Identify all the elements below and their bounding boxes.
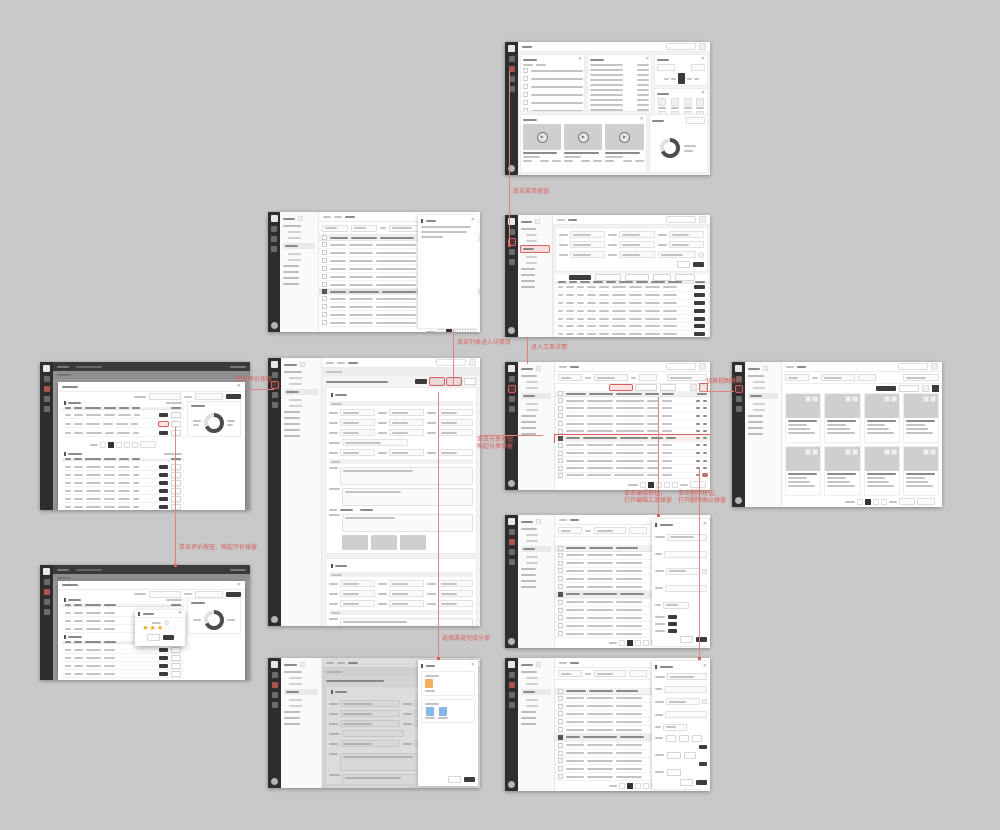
edit-link[interactable] [696,407,700,409]
drawer-field[interactable] [655,722,707,732]
row-action-button[interactable] [171,488,181,494]
action-button[interactable] [635,384,657,391]
form-field[interactable] [378,449,424,456]
row-checkbox[interactable] [322,312,327,317]
form-field[interactable] [427,600,473,607]
share-button-highlight[interactable] [447,378,461,385]
primary-action-button[interactable] [569,275,591,280]
nav-icon[interactable] [509,56,515,62]
form-field[interactable] [329,580,375,587]
nav-icon[interactable] [509,249,515,255]
filter-field[interactable] [608,241,654,248]
nav-icon[interactable] [736,406,742,412]
rate-button[interactable] [159,489,168,493]
delete-link[interactable] [703,467,707,469]
table-row[interactable] [62,662,184,670]
delete-link[interactable] [703,430,707,432]
row-checkbox[interactable] [558,774,563,779]
menu-item[interactable] [526,705,538,707]
nav-icon[interactable] [736,396,742,402]
menu-item[interactable] [284,429,300,431]
drawer-field[interactable] [655,697,707,707]
user-avatar[interactable] [508,638,515,645]
menu-item[interactable] [284,671,302,673]
menu-item[interactable] [289,383,302,385]
nav-icon[interactable] [509,376,515,382]
list-item[interactable] [590,109,649,111]
row-action-button[interactable] [694,324,705,328]
table-row[interactable] [555,457,710,465]
menu-item[interactable] [289,699,302,701]
filter-field[interactable] [559,241,605,248]
action-button[interactable] [595,274,621,281]
row-checkbox[interactable] [558,719,563,724]
nav-icon[interactable] [44,376,50,382]
menu-item[interactable] [526,683,538,685]
row-checkbox[interactable] [322,296,327,301]
row-checkbox[interactable] [558,458,563,463]
nav-icon[interactable] [272,372,278,378]
form-field[interactable] [378,580,424,587]
row-action-button[interactable] [171,464,181,470]
form-field[interactable] [329,429,375,436]
row-checkbox[interactable] [558,443,563,448]
star-empty-icon[interactable]: ☆ [164,625,170,633]
modal-filter-select[interactable] [149,393,181,400]
star-filled-icon[interactable]: ★ [150,625,156,633]
menu-item[interactable] [521,528,537,530]
nav-icon[interactable] [44,609,50,615]
table-row[interactable] [555,331,708,337]
row-checkbox[interactable] [558,751,563,756]
menu-item[interactable] [753,403,765,405]
tag-button[interactable] [699,762,707,766]
filter-select[interactable] [785,374,809,381]
pagination[interactable] [785,496,939,507]
close-icon[interactable]: ✕ [471,218,475,223]
form-field[interactable] [329,449,375,456]
rate-button[interactable] [159,465,168,469]
list-item[interactable] [590,79,649,81]
video-item[interactable]: ▶ [523,124,561,170]
share-link-icon[interactable] [439,707,447,716]
filter-select[interactable] [639,374,657,381]
nav-icon[interactable] [272,702,278,708]
reset-button[interactable] [677,261,690,268]
form-field[interactable] [427,429,473,436]
table-row[interactable] [62,430,184,437]
user-avatar[interactable] [271,778,278,785]
rate-button[interactable] [159,413,168,417]
menu-item[interactable] [526,534,538,536]
row-checkbox[interactable] [322,274,327,279]
menu-item-active[interactable] [521,393,551,399]
list-item[interactable] [590,89,649,91]
filter-select[interactable] [322,225,348,232]
table-row[interactable] [555,397,710,405]
row-action-button[interactable] [171,421,181,427]
row-action-button[interactable] [171,472,181,478]
close-icon[interactable]: ✕ [471,663,475,668]
menu-item[interactable] [283,225,301,227]
textarea-field[interactable] [329,488,473,506]
row-checkbox[interactable] [558,631,563,636]
menu-item[interactable] [526,240,537,242]
row-action-button[interactable] [171,663,181,669]
menu-item[interactable] [521,580,536,582]
action-button[interactable] [653,274,671,281]
filter-select[interactable] [629,527,647,534]
user-avatar[interactable] [735,497,742,504]
row-checkbox[interactable] [558,421,563,426]
menu-item[interactable] [288,231,301,233]
filter-field[interactable] [608,251,654,258]
menu-item[interactable] [521,286,535,288]
filter-select[interactable] [558,670,582,677]
search-field[interactable] [903,374,939,381]
tag-chip[interactable] [684,752,696,759]
row-checkbox[interactable] [558,696,563,701]
drawer-field[interactable] [655,685,707,695]
form-field[interactable] [378,419,424,426]
star-empty-icon[interactable]: ☆ [171,625,177,633]
form-field[interactable] [378,409,424,416]
menu-item[interactable] [284,411,300,413]
action-button[interactable] [899,385,919,392]
search-input[interactable] [666,363,696,370]
menu-item[interactable] [521,586,536,588]
nav-icon-active[interactable] [44,589,50,595]
row-checkbox[interactable] [558,553,563,558]
edit-link[interactable] [696,460,700,462]
list-item[interactable] [523,92,582,97]
filter-field[interactable] [608,231,654,238]
nav-icon[interactable] [509,692,515,698]
menu-item-active[interactable] [283,243,315,249]
cancel-button[interactable] [680,636,693,643]
nav-icon-active[interactable] [509,682,515,688]
content-card[interactable] [903,393,939,443]
row-checkbox[interactable] [322,242,327,247]
confirm-button[interactable] [163,635,174,640]
textarea-field[interactable] [329,618,473,626]
menu-item[interactable] [521,568,536,570]
modal-primary-button[interactable] [226,592,241,597]
nav-icon-active[interactable] [272,682,278,688]
menu-item[interactable] [283,271,299,273]
more-icon[interactable]: ✕ [578,57,582,62]
menu-item[interactable] [521,671,537,673]
row-action-button[interactable] [171,412,181,418]
pagination[interactable] [555,479,710,490]
play-icon[interactable]: ▶ [619,132,630,143]
nav-icon[interactable] [272,392,278,398]
menu-item[interactable] [288,237,301,239]
cancel-button[interactable] [448,776,461,783]
nav-icon[interactable] [271,226,277,232]
query-button[interactable] [693,262,704,267]
confirm-button[interactable] [696,780,707,785]
row-checkbox[interactable] [558,704,563,709]
nav-icon[interactable] [272,692,278,698]
nav-icon[interactable] [509,549,515,555]
edit-link[interactable] [696,444,700,446]
user-avatar[interactable] [508,781,515,788]
menu-item[interactable] [748,421,763,423]
star-filled-icon[interactable]: ★ [142,625,148,633]
form-field[interactable] [427,449,473,456]
row-checkbox[interactable] [322,304,327,309]
table-row[interactable] [62,670,184,678]
table-row[interactable] [555,465,710,473]
star-rating[interactable]: ★ ★ ★ ☆ ☆ [135,625,185,633]
user-avatar[interactable] [508,327,515,334]
table-row[interactable] [555,292,708,300]
content-card[interactable] [785,393,821,443]
list-item[interactable] [523,68,582,73]
rate-button[interactable] [159,481,168,485]
form-field[interactable] [329,590,375,597]
row-action-button[interactable] [694,301,705,305]
shortcut-item[interactable] [695,98,705,109]
menu-item[interactable] [521,574,536,576]
table-row[interactable] [555,300,708,308]
star-filled-icon[interactable]: ★ [157,625,163,633]
filter-select[interactable] [629,670,647,677]
share-file-icon[interactable] [425,679,433,688]
table-row[interactable] [62,654,184,662]
video-item[interactable]: ▶ [564,124,602,170]
menu-item[interactable] [284,417,300,419]
row-checkbox[interactable] [558,608,563,613]
form-field[interactable] [427,590,473,597]
menu-item[interactable] [526,381,538,383]
nav-icon[interactable] [44,579,50,585]
menu-item-active[interactable] [284,389,318,395]
row-checkbox[interactable] [322,250,327,255]
close-icon[interactable]: ✕ [237,583,241,588]
table-row-highlight[interactable] [555,435,710,442]
edit-link[interactable] [696,430,700,432]
menu-item[interactable] [526,409,538,411]
rate-button[interactable] [159,431,168,435]
row-checkbox[interactable] [558,568,563,573]
close-icon[interactable]: ✕ [237,384,241,389]
row-checkbox[interactable] [558,466,563,471]
nav-icon[interactable] [509,396,515,402]
nav-icon[interactable] [44,406,50,412]
nav-icon[interactable] [44,599,50,605]
menu-item[interactable] [521,268,535,270]
content-card[interactable] [864,393,900,443]
form-field[interactable] [427,409,473,416]
form-field[interactable] [427,580,473,587]
textarea-field[interactable] [329,467,473,485]
tag-chip[interactable] [667,769,681,776]
row-checkbox[interactable] [558,766,563,771]
rate-button[interactable] [159,648,168,652]
list-item[interactable] [523,84,582,89]
menu-item[interactable] [283,283,299,285]
menu-item-active[interactable] [284,689,318,695]
menu-item[interactable] [753,387,765,389]
more-button[interactable] [464,378,476,385]
close-icon[interactable]: ✕ [703,664,707,669]
shortcut-item[interactable] [657,98,667,109]
tag-chip[interactable] [692,735,702,742]
row-checkbox[interactable] [322,282,327,287]
menu-item[interactable] [748,415,763,417]
menu-item[interactable] [526,540,538,542]
list-item[interactable] [590,84,649,86]
menu-item-active[interactable] [748,393,778,399]
grid-icon[interactable] [699,363,706,370]
row-checkbox[interactable] [322,320,327,325]
grid-icon[interactable] [469,359,476,366]
menu-item[interactable] [521,421,536,423]
more-icon[interactable]: ✕ [645,57,649,62]
nav-icon[interactable] [272,402,278,408]
edit-link[interactable] [696,415,700,417]
filter-date[interactable] [594,374,628,381]
action-button[interactable] [625,274,649,281]
row-checkbox[interactable] [322,266,327,271]
filter-field[interactable] [559,251,605,258]
table-row[interactable] [555,315,708,323]
menu-item[interactable] [284,435,300,437]
content-card[interactable] [864,446,900,496]
search-input[interactable] [666,216,696,223]
row-checkbox[interactable] [558,451,563,456]
menu-item[interactable] [521,415,536,417]
table-row[interactable] [555,323,708,331]
table-row[interactable] [62,471,184,479]
filter-field[interactable] [658,241,704,248]
menu-item[interactable] [289,677,302,679]
list-item[interactable] [590,94,649,96]
row-action-button[interactable] [171,496,181,502]
table-row[interactable] [62,503,184,510]
filter-field[interactable] [559,231,605,238]
menu-item[interactable] [521,427,536,429]
content-card[interactable] [785,446,821,496]
menu-item[interactable] [288,253,301,255]
table-row[interactable] [555,413,710,421]
filter-select[interactable] [558,374,582,381]
table-row[interactable] [555,284,708,292]
row-action-button[interactable] [171,504,181,510]
row-checkbox[interactable] [558,429,563,434]
menu-item[interactable] [521,280,535,282]
table-row[interactable] [62,463,184,471]
row-checkbox[interactable] [558,473,563,478]
menu-item[interactable] [283,265,299,267]
row-action-button[interactable] [694,332,705,336]
delete-link[interactable] [703,460,707,462]
menu-item[interactable] [526,387,538,389]
tag-button[interactable] [668,615,677,619]
delete-link[interactable] [703,415,707,417]
modal-filter-select[interactable] [195,393,223,400]
row-checkbox[interactable] [558,398,563,403]
nav-icon-active[interactable] [44,386,50,392]
attachment-thumb[interactable] [400,535,426,550]
row-checkbox[interactable] [558,743,563,748]
primary-action-button[interactable] [876,386,896,391]
menu-item[interactable] [283,277,299,279]
grid-icon[interactable] [699,216,706,223]
filter-select[interactable] [351,225,377,232]
filter-select[interactable] [558,527,582,534]
menu-item[interactable] [748,427,763,429]
table-row[interactable] [555,307,708,315]
row-action-button[interactable] [694,317,705,321]
row-checkbox[interactable] [322,289,327,294]
shortcut-item[interactable] [670,98,680,109]
play-icon[interactable]: ▶ [537,132,548,143]
table-row[interactable] [555,450,710,458]
menu-item[interactable] [289,377,302,379]
list-item[interactable] [523,100,582,105]
list-item[interactable] [590,99,649,101]
list-view-icon[interactable] [922,385,929,392]
delete-link[interactable] [703,407,707,409]
cancel-button[interactable] [147,634,160,641]
rate-button[interactable] [159,672,168,676]
back-link[interactable] [326,371,342,373]
list-item[interactable] [590,74,649,76]
row-action-button[interactable] [171,655,181,661]
delete-link[interactable] [703,444,707,446]
rate-button[interactable] [159,505,168,509]
menu-item[interactable] [748,433,763,435]
search-input[interactable] [666,43,696,50]
menu-item[interactable] [521,711,536,713]
menu-item[interactable] [289,705,302,707]
range-select[interactable] [686,117,705,124]
menu-item[interactable] [526,256,537,258]
filter-select[interactable] [858,374,876,381]
row-checkbox[interactable] [322,258,327,263]
modal-filter-select[interactable] [195,591,223,598]
menu-item[interactable] [526,699,538,701]
menu-item[interactable] [521,375,537,377]
content-card[interactable] [903,446,939,496]
list-item[interactable] [590,69,649,71]
row-checkbox[interactable] [558,615,563,620]
modal-filter-select[interactable] [149,591,181,598]
menu-item[interactable] [288,259,301,261]
delete-link[interactable] [703,423,707,425]
delete-link-highlight[interactable] [703,474,707,476]
row-checkbox[interactable] [558,561,563,566]
action-button[interactable] [660,384,676,391]
nav-icon[interactable] [509,529,515,535]
cancel-button[interactable] [680,779,693,786]
edit-link[interactable] [696,423,700,425]
row-action-button[interactable] [171,480,181,486]
list-item[interactable] [523,108,582,112]
delete-link[interactable] [703,400,707,402]
search-field[interactable] [667,374,707,381]
nav-icon[interactable] [509,702,515,708]
tag-button[interactable] [699,745,707,749]
confirm-button[interactable] [696,637,707,642]
grid-icon[interactable] [699,43,706,50]
user-avatar[interactable] [271,616,278,623]
menu-item[interactable] [526,556,538,558]
menu-item[interactable] [748,375,764,377]
